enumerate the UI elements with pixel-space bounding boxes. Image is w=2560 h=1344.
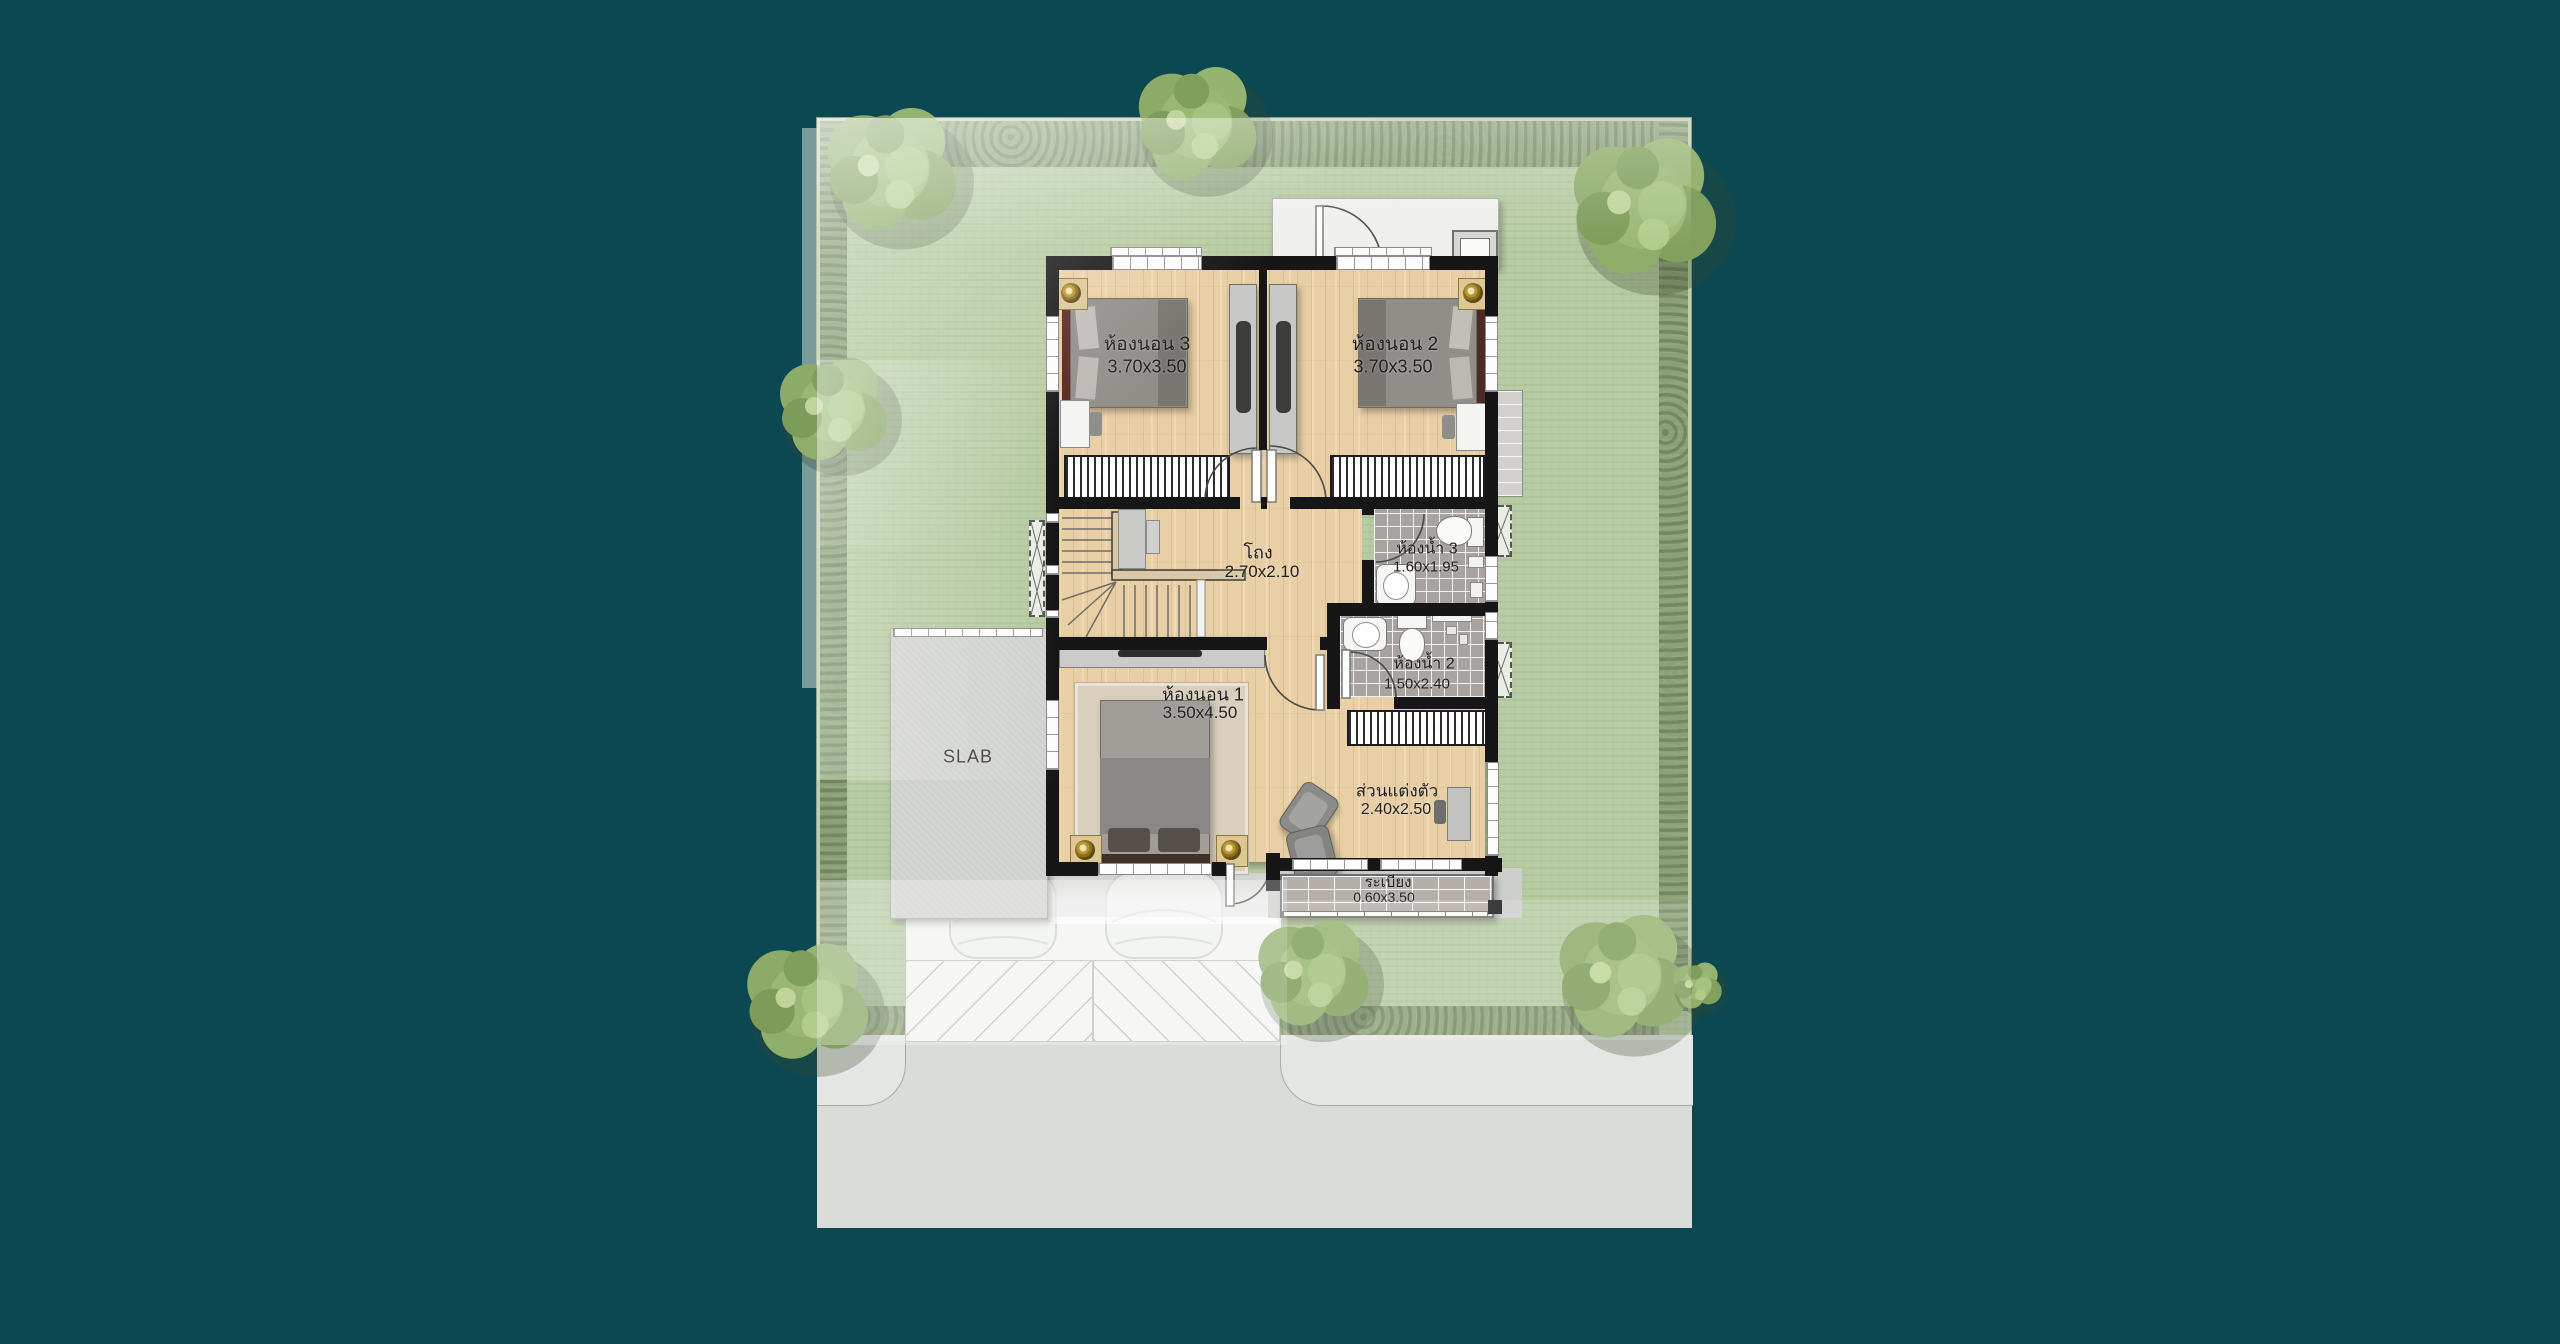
trees-layer: [0, 0, 2560, 1344]
tree-icon: [1139, 67, 1273, 197]
tree-icon: [1258, 921, 1384, 1043]
tree-icon: [747, 944, 885, 1077]
tree-icon: [828, 108, 974, 250]
tree-icon: [780, 358, 902, 476]
floor-plan-canvas: ห้องนอน 3 3.70x3.50 ห้องนอน 2 3.70x3.50 …: [0, 0, 2560, 1344]
bush-icon: [1674, 963, 1729, 1016]
tree-icon: [1574, 139, 1736, 296]
